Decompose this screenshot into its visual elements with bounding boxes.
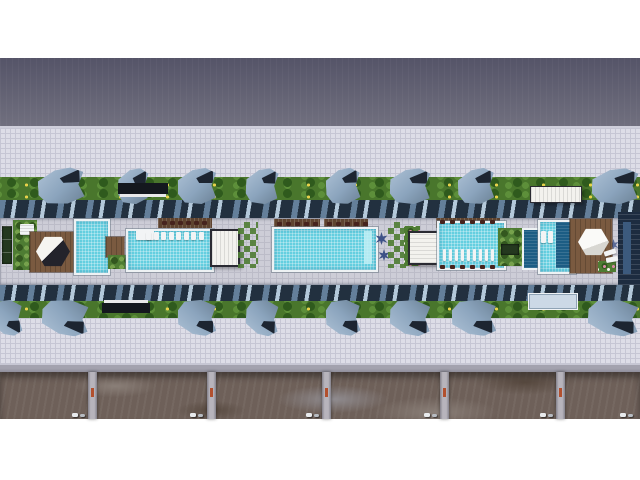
lounge-chair <box>460 265 465 269</box>
lot-divider-wall <box>556 372 565 419</box>
lounge-chair <box>277 222 282 226</box>
car <box>432 414 437 417</box>
in-pool-lounger <box>479 249 482 261</box>
car <box>306 413 312 417</box>
pool-lounger <box>548 231 553 243</box>
pool-lounger <box>191 232 196 240</box>
lounge-chair <box>186 221 191 225</box>
lounge-chair <box>194 221 199 225</box>
divider-marker <box>325 388 328 397</box>
in-pool-lounger <box>449 249 452 261</box>
lot-divider-wall <box>88 372 97 419</box>
lower-entrance-stripe <box>104 300 148 303</box>
curb-strip <box>0 363 640 372</box>
upper-white-pergola <box>530 186 582 203</box>
lounge-chair <box>450 265 455 269</box>
in-pool-lounger <box>443 249 446 261</box>
car <box>548 414 553 417</box>
lounge-chair <box>327 222 332 226</box>
lounge-chair <box>178 221 183 225</box>
lounge-chair <box>286 222 291 226</box>
in-pool-lounger <box>485 249 488 261</box>
center-pool-steps <box>364 231 372 264</box>
car <box>80 414 85 417</box>
car <box>72 413 78 417</box>
wood-step-deck <box>106 237 124 257</box>
lounge-chair <box>170 221 175 225</box>
lounge-chair <box>450 220 455 224</box>
lounge-chair <box>460 220 465 224</box>
car <box>628 414 633 417</box>
car <box>424 413 430 417</box>
pool-pavilion-1 <box>210 229 240 267</box>
divider-marker <box>91 388 94 397</box>
lounge-chair <box>480 220 485 224</box>
lounge-chair <box>162 221 167 225</box>
lounge-chair <box>490 220 495 224</box>
lower-entrance-canopy <box>102 303 150 313</box>
pool-lounger <box>169 232 174 240</box>
car <box>620 413 626 417</box>
lounge-chair <box>363 222 368 226</box>
lounge-chair <box>336 222 341 226</box>
aerial-render <box>0 0 640 480</box>
checker-planters-1 <box>238 222 258 268</box>
pool-lounger <box>161 232 166 240</box>
lounge-chair <box>440 220 445 224</box>
right-tower-core <box>623 222 631 274</box>
lap-pool-platform <box>136 230 154 240</box>
shadow-roof-band <box>0 58 640 128</box>
car <box>198 414 203 417</box>
pool-1 <box>74 219 110 275</box>
pool-lounger <box>199 232 204 240</box>
in-pool-lounger <box>467 249 470 261</box>
divider-marker <box>443 388 446 397</box>
lounger-pool <box>437 221 506 270</box>
island-planter <box>501 244 519 255</box>
lounge-chair <box>304 222 309 226</box>
lounge-chair <box>202 221 207 225</box>
in-pool-lounger <box>473 249 476 261</box>
in-pool-lounger <box>491 249 494 261</box>
lounge-chair <box>470 265 475 269</box>
pool-lounger <box>541 231 546 243</box>
upper-entrance-stripe <box>120 194 166 197</box>
car <box>314 414 319 417</box>
upper-entrance-canopy <box>118 183 168 194</box>
lounge-chair <box>490 265 495 269</box>
pool-lounger <box>176 232 181 240</box>
lounge-chair <box>470 220 475 224</box>
lounge-chair <box>480 265 485 269</box>
pool-lounger <box>184 232 189 240</box>
upper-plaza <box>0 128 640 177</box>
car <box>190 413 196 417</box>
in-pool-lounger <box>461 249 464 261</box>
car <box>540 413 546 417</box>
edge-planter-boxes <box>2 226 12 264</box>
lot-divider-wall <box>207 372 216 419</box>
center-pool <box>272 227 378 272</box>
lounge-chair <box>345 222 350 226</box>
lot-divider-wall <box>440 372 449 419</box>
right-pool-deep <box>556 222 570 268</box>
in-pool-lounger <box>455 249 458 261</box>
lounge-chair <box>354 222 359 226</box>
mid-plants <box>108 255 126 269</box>
pool-lounger <box>154 232 159 240</box>
pool-lounger <box>146 232 151 240</box>
lounge-chair <box>440 265 445 269</box>
divider-marker <box>210 388 213 397</box>
divider-marker <box>559 388 562 397</box>
lot-divider-wall <box>322 372 331 419</box>
lounge-chair <box>313 222 318 226</box>
lower-glass-canopy <box>528 293 578 310</box>
lower-plaza <box>0 318 640 363</box>
lounge-chair <box>295 222 300 226</box>
